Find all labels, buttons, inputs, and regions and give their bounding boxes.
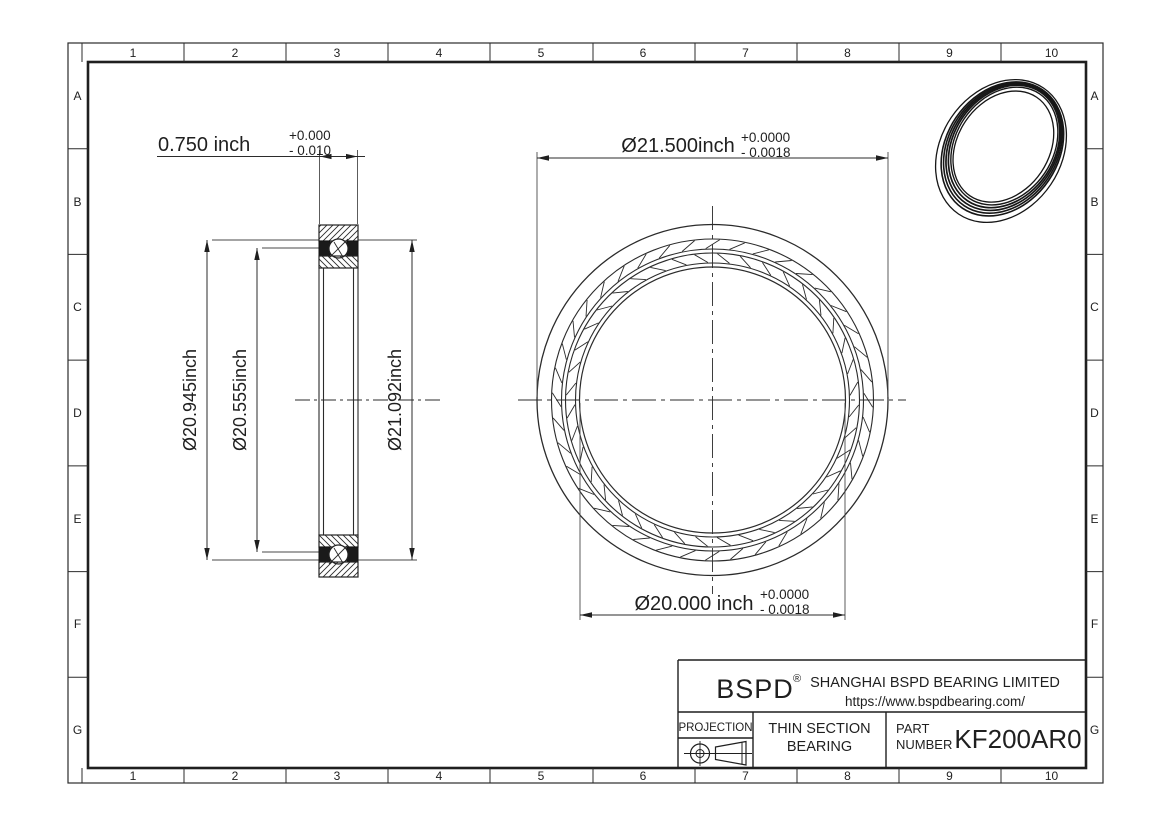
company-website: https://www.bspdbearing.com/ bbox=[845, 694, 1025, 709]
dim-width-tol-plus: +0.000 bbox=[289, 128, 331, 143]
zone-row-label: A bbox=[73, 89, 81, 103]
drawing-sheet: 1 2 3 4 5 6 7 8 9 10 1 2 3 4 5 6 7 8 9 1… bbox=[0, 0, 1170, 827]
zone-letters-right: A B C D E F G bbox=[1090, 89, 1099, 737]
seal-section-right bbox=[347, 547, 358, 562]
engineering-drawing-canvas: 1 2 3 4 5 6 7 8 9 10 1 2 3 4 5 6 7 8 9 1… bbox=[0, 0, 1170, 827]
ring-side-faces bbox=[319, 268, 358, 535]
zone-row-label: A bbox=[1090, 89, 1098, 103]
zone-col-label: 4 bbox=[436, 769, 443, 783]
zone-col-label: 2 bbox=[232, 769, 239, 783]
zone-col-label: 1 bbox=[130, 46, 137, 60]
bearing-section-bottom bbox=[319, 535, 358, 577]
zone-col-label: 6 bbox=[640, 46, 647, 60]
dim-od-tol-minus: - 0.0018 bbox=[741, 145, 791, 160]
dim-bore-value: Ø20.000 inch bbox=[635, 593, 754, 615]
zone-col-label: 9 bbox=[946, 769, 953, 783]
section-view: 0.750 inch +0.000 - 0.010 Ø20.945inch Ø2… bbox=[157, 128, 440, 577]
zone-col-label: 5 bbox=[538, 769, 545, 783]
company-name: SHANGHAI BSPD BEARING LIMITED bbox=[810, 675, 1060, 691]
dim-inner-ring-od: Ø20.945inch bbox=[180, 349, 200, 451]
zone-row-label: F bbox=[74, 617, 81, 631]
zone-col-label: 8 bbox=[844, 46, 851, 60]
dim-od-tol-plus: +0.0000 bbox=[741, 130, 790, 145]
zone-col-label: 3 bbox=[334, 769, 341, 783]
zone-row-dividers bbox=[68, 149, 1103, 678]
projection-symbol-icon bbox=[684, 741, 752, 766]
outer-ring-section bbox=[319, 562, 358, 577]
part-number-label-line1: PART bbox=[896, 721, 930, 736]
zone-row-label: D bbox=[73, 406, 82, 420]
dim-od-value: Ø21.500inch bbox=[621, 135, 734, 157]
zone-col-label: 4 bbox=[436, 46, 443, 60]
zone-col-label: 3 bbox=[334, 46, 341, 60]
zone-col-label: 7 bbox=[742, 769, 749, 783]
bearing-section-top bbox=[319, 225, 358, 268]
part-number-value: KF200AR0 bbox=[954, 724, 1081, 754]
zone-row-label: G bbox=[1090, 723, 1099, 737]
zone-col-label: 9 bbox=[946, 46, 953, 60]
zone-col-label: 5 bbox=[538, 46, 545, 60]
seal-section-left bbox=[319, 241, 330, 256]
product-name-line2: BEARING bbox=[787, 739, 852, 755]
product-name-line1: THIN SECTION bbox=[768, 721, 870, 737]
seal-section-right bbox=[347, 241, 358, 256]
front-view: Ø21.500inch +0.0000 - 0.0018 Ø20.000 inc… bbox=[518, 130, 906, 620]
zone-col-label: 10 bbox=[1045, 769, 1059, 783]
zone-row-label: B bbox=[1090, 195, 1098, 209]
part-number-label-line2: NUMBER bbox=[896, 737, 952, 752]
dim-land-diameter: Ø20.555inch bbox=[230, 349, 250, 451]
zone-col-label: 1 bbox=[130, 769, 137, 783]
zone-col-label: 10 bbox=[1045, 46, 1059, 60]
dim-width-tol-minus: - 0.010 bbox=[289, 143, 331, 158]
dim-width-value: 0.750 inch bbox=[158, 134, 250, 156]
zone-letters-left: A B C D E F G bbox=[73, 89, 82, 737]
zone-row-label: G bbox=[73, 723, 82, 737]
registered-trademark-icon: ® bbox=[793, 673, 801, 685]
inner-ring-section bbox=[319, 256, 358, 268]
zone-col-label: 7 bbox=[742, 46, 749, 60]
zone-col-label: 8 bbox=[844, 769, 851, 783]
zone-numbers-bottom: 1 2 3 4 5 6 7 8 9 10 bbox=[130, 769, 1059, 783]
zone-col-label: 6 bbox=[640, 769, 647, 783]
zone-row-label: B bbox=[73, 195, 81, 209]
zone-col-label: 2 bbox=[232, 46, 239, 60]
zone-row-label: E bbox=[73, 512, 81, 526]
zone-row-label: C bbox=[1090, 300, 1099, 314]
zone-row-label: D bbox=[1090, 406, 1099, 420]
zone-row-label: E bbox=[1090, 512, 1098, 526]
dim-bore-tol-minus: - 0.0018 bbox=[760, 602, 810, 617]
zone-numbers-top: 1 2 3 4 5 6 7 8 9 10 bbox=[130, 46, 1059, 60]
projection-label: PROJECTION bbox=[678, 722, 752, 734]
seal-section-left bbox=[319, 547, 330, 562]
zone-row-label: F bbox=[1091, 617, 1098, 631]
iso-ring-view bbox=[909, 54, 1093, 247]
title-block: BSPD ® SHANGHAI BSPD BEARING LIMITED htt… bbox=[678, 660, 1086, 768]
zone-row-label: C bbox=[73, 300, 82, 314]
dim-bore-tol-plus: +0.0000 bbox=[760, 587, 809, 602]
company-logo: BSPD bbox=[716, 674, 794, 704]
